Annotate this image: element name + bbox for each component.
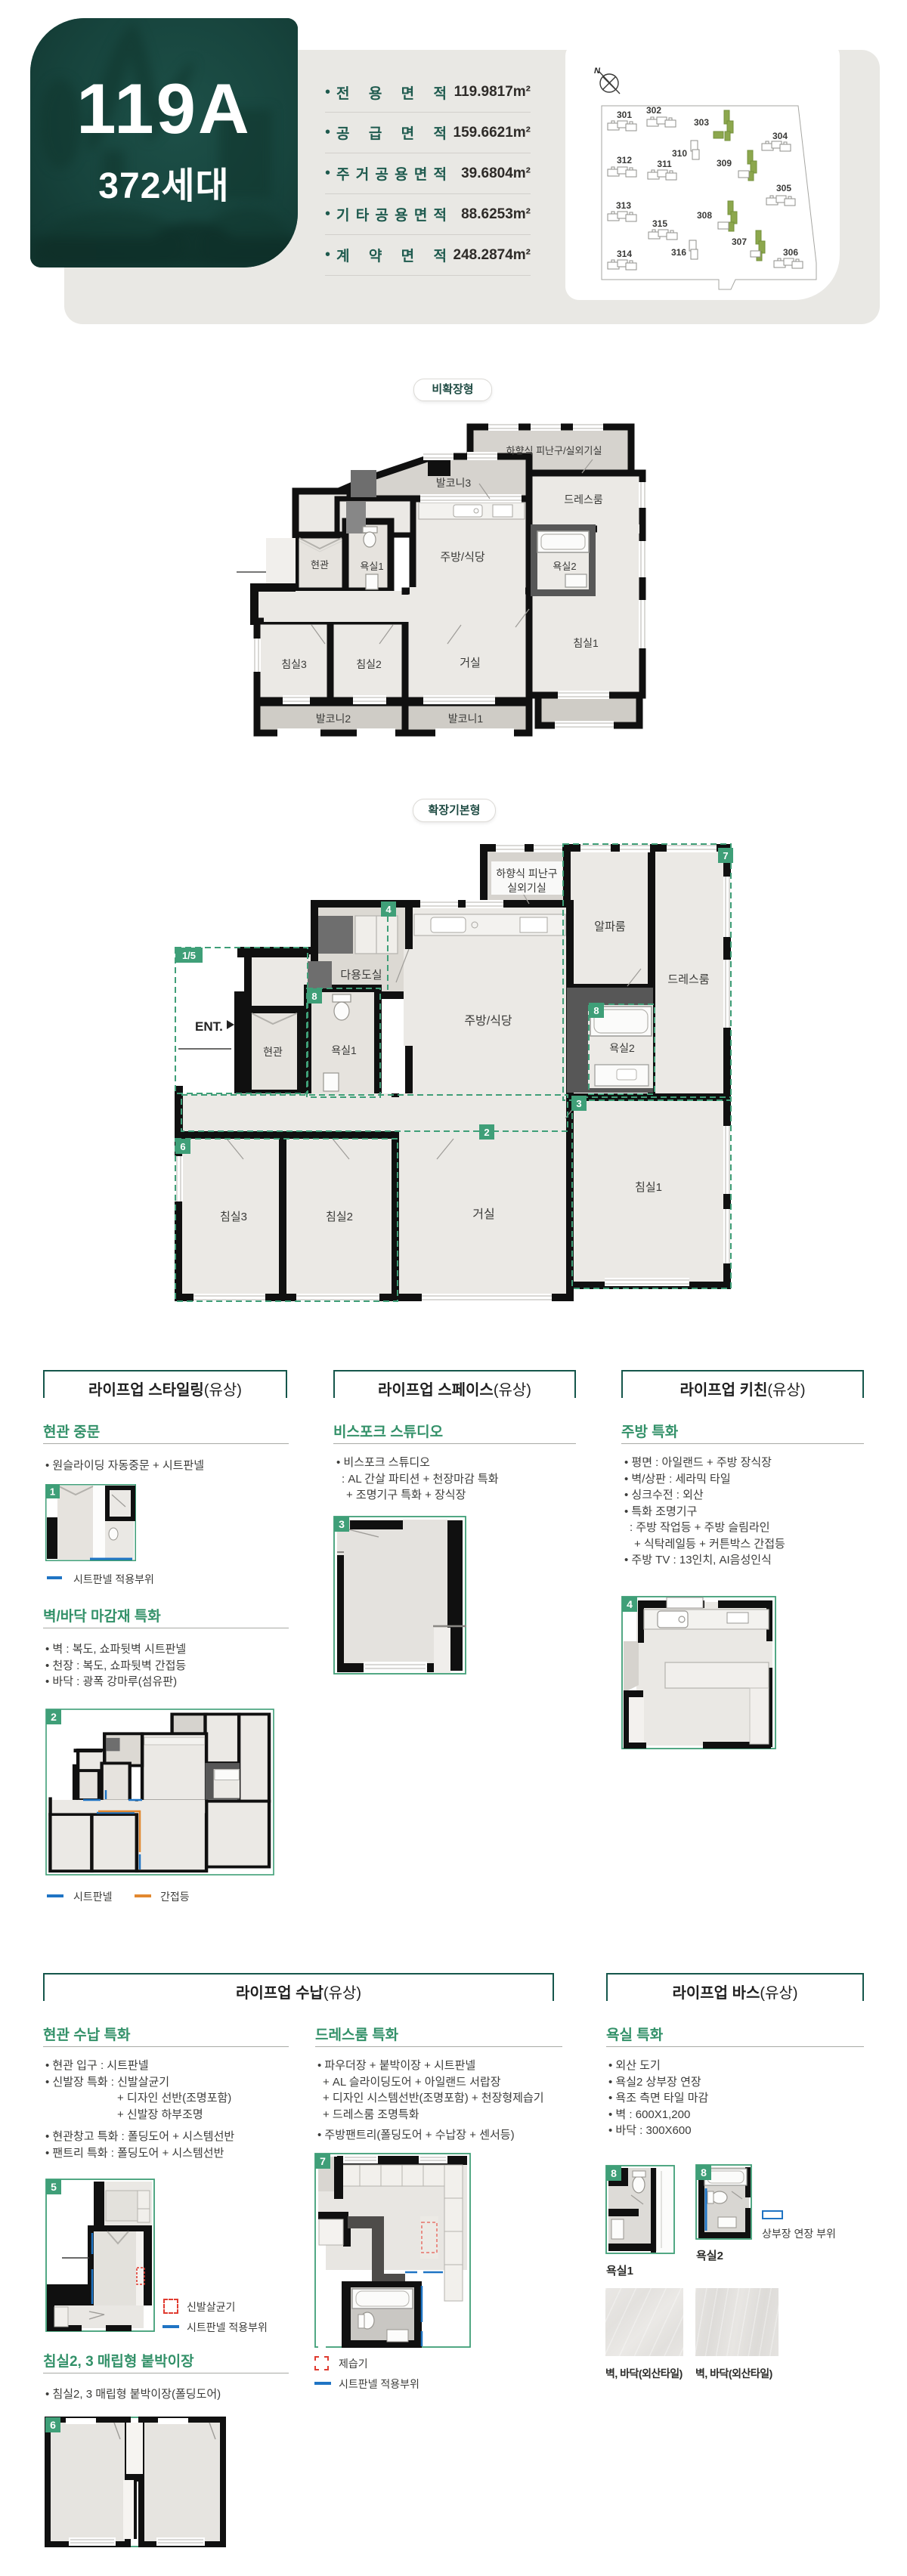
svg-text:311: 311	[657, 159, 672, 169]
svg-text:3: 3	[576, 1098, 581, 1109]
svg-text:거실: 거실	[472, 1208, 494, 1221]
svg-text:7: 7	[320, 2155, 326, 2167]
svg-text:309: 309	[717, 158, 732, 169]
svg-text:발코니2: 발코니2	[316, 713, 351, 725]
svg-text:알파룸: 알파룸	[594, 920, 626, 933]
svg-text:314: 314	[617, 249, 632, 259]
svg-text:308: 308	[697, 210, 712, 221]
svg-text:욕실2: 욕실2	[609, 1042, 635, 1054]
svg-text:8: 8	[611, 2167, 617, 2179]
svg-text:하향식 피난구: 하향식 피난구	[496, 867, 557, 880]
svg-text:드레스룸: 드레스룸	[667, 973, 709, 986]
svg-text:6: 6	[50, 2419, 56, 2431]
svg-text:2: 2	[484, 1127, 489, 1138]
svg-text:드레스룸: 드레스룸	[564, 493, 603, 506]
svg-text:침실2: 침실2	[356, 658, 382, 670]
svg-text:307: 307	[732, 237, 747, 247]
svg-text:침실3: 침실3	[220, 1211, 247, 1223]
svg-text:1/5: 1/5	[182, 950, 196, 961]
svg-text:발코니1: 발코니1	[448, 713, 484, 725]
svg-text:현관: 현관	[263, 1046, 283, 1058]
svg-text:욕실1: 욕실1	[360, 561, 383, 572]
svg-text:303: 303	[694, 117, 709, 128]
svg-text:거실: 거실	[460, 657, 481, 670]
svg-text:305: 305	[776, 183, 791, 193]
svg-text:310: 310	[672, 148, 687, 159]
svg-text:312: 312	[617, 155, 632, 165]
svg-text:5: 5	[51, 2181, 57, 2193]
svg-text:306: 306	[783, 247, 798, 258]
svg-text:침실1: 침실1	[573, 637, 599, 649]
svg-text:주방/식당: 주방/식당	[464, 1014, 512, 1028]
svg-text:1: 1	[50, 1486, 55, 1498]
svg-text:8: 8	[701, 2166, 707, 2179]
svg-text:316: 316	[671, 247, 686, 258]
svg-text:발코니3: 발코니3	[436, 477, 472, 489]
svg-text:침실1: 침실1	[635, 1181, 662, 1194]
svg-text:313: 313	[616, 200, 631, 211]
svg-text:침실3: 침실3	[281, 658, 307, 670]
svg-text:ENT.: ENT.	[195, 1019, 223, 1034]
svg-text:침실2: 침실2	[326, 1211, 353, 1223]
svg-text:현관: 현관	[311, 559, 329, 571]
svg-text:2: 2	[51, 1711, 57, 1723]
svg-text:욕실2: 욕실2	[553, 561, 576, 572]
svg-text:304: 304	[772, 131, 788, 141]
svg-text:욕실1: 욕실1	[331, 1044, 357, 1056]
svg-text:7: 7	[723, 850, 728, 861]
svg-text:315: 315	[652, 218, 667, 229]
svg-text:하향식 피난구/실외기실: 하향식 피난구/실외기실	[506, 445, 602, 456]
svg-text:주방/식당: 주방/식당	[440, 551, 485, 564]
svg-text:4: 4	[627, 1598, 633, 1610]
svg-text:8: 8	[593, 1005, 599, 1016]
svg-text:다용도실: 다용도실	[340, 969, 382, 982]
svg-text:3: 3	[339, 1518, 345, 1530]
svg-text:4: 4	[385, 904, 392, 915]
svg-text:301: 301	[617, 110, 632, 120]
svg-text:8: 8	[311, 991, 317, 1002]
svg-text:실외기실: 실외기실	[507, 882, 546, 894]
svg-text:N: N	[594, 66, 601, 76]
svg-text:6: 6	[180, 1141, 185, 1152]
svg-text:302: 302	[646, 105, 661, 116]
